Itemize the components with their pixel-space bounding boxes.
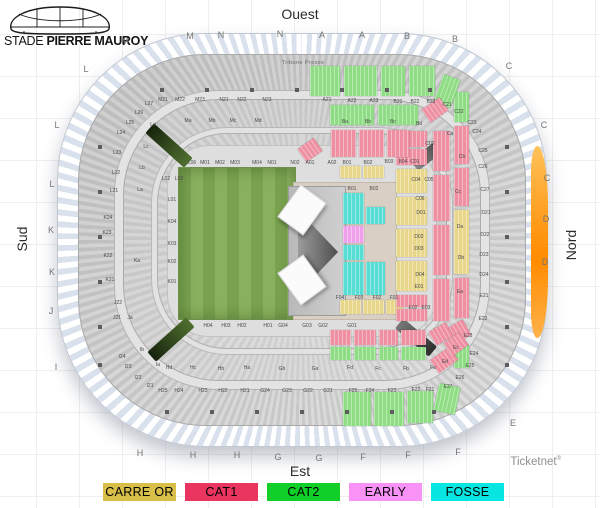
section-label: E21 — [480, 293, 489, 299]
section-label: H02 — [237, 323, 246, 329]
section-label: L06 — [188, 160, 196, 166]
section-label: C06 — [415, 196, 424, 202]
section-label: Ba — [342, 119, 348, 125]
section-label: F01 — [390, 295, 399, 301]
section-label: A23 — [370, 98, 379, 104]
ring-letter: B — [404, 31, 410, 41]
section-label: Fc — [375, 366, 381, 372]
vomitory-tick — [340, 88, 344, 92]
section-label: K03 — [168, 241, 177, 247]
vomitory-tick — [210, 410, 214, 414]
section-label: Cc — [455, 189, 461, 195]
section-label: G02 — [318, 323, 327, 329]
vomitory-tick — [428, 88, 432, 92]
section-label: K23 — [103, 230, 112, 236]
vomitory-tick — [390, 410, 394, 414]
section-label: D03 — [414, 246, 423, 252]
ring-letter: I — [55, 362, 58, 372]
section-label: Fb — [403, 366, 409, 372]
section-label: C01 — [410, 159, 419, 165]
ring-letter: K — [49, 267, 55, 277]
section-label: Hd — [166, 365, 172, 371]
section-label: C25 — [478, 148, 487, 154]
section-label: L01 — [168, 197, 176, 203]
section-label: H21 — [240, 388, 249, 394]
ring-letter: E — [510, 418, 516, 428]
legend-item-fosse: FOSSE — [431, 483, 504, 501]
vomitory-tick — [160, 88, 164, 92]
vomitory-tick — [250, 88, 254, 92]
section-label: G03 — [302, 323, 311, 329]
seat-block-cat1[interactable] — [359, 130, 384, 157]
vomitory-tick — [300, 410, 304, 414]
legend-item-cat2: CAT2 — [267, 483, 340, 501]
ring-letter: G — [274, 452, 281, 462]
section-label: F02 — [373, 295, 382, 301]
section-label: Cb — [459, 154, 465, 160]
section-label: D21 — [481, 210, 490, 216]
section-label: D22 — [480, 232, 489, 238]
vomitory-tick — [98, 325, 102, 329]
seat-block-cat1[interactable] — [454, 278, 469, 318]
ring-letter: H — [234, 450, 241, 460]
pitch — [178, 167, 296, 320]
ring-letter: A — [359, 30, 365, 40]
section-label: Ma — [185, 118, 192, 124]
vomitory-tick — [98, 235, 102, 239]
vomitory-tick — [205, 88, 209, 92]
seat-block-cat2[interactable] — [374, 392, 404, 426]
ring-letter: C — [544, 173, 551, 183]
section-label: E02 — [409, 305, 418, 311]
section-label: E25 — [466, 363, 475, 369]
section-label: D02 — [414, 234, 423, 240]
ticketnet-text: Ticketnet — [510, 456, 556, 468]
section-label: C26 — [478, 164, 487, 170]
seat-block-cat2[interactable] — [407, 391, 433, 423]
seat-block-cat1[interactable] — [354, 330, 376, 345]
seat-block-cat2[interactable] — [330, 347, 351, 360]
section-label: C22 — [454, 109, 463, 115]
section-label: Ga — [312, 366, 319, 372]
section-label: Hc — [190, 365, 196, 371]
vomitory-tick — [432, 410, 436, 414]
section-label: A02 — [328, 160, 337, 166]
ring-letter: J — [49, 306, 54, 316]
ring-letter: N — [218, 30, 225, 40]
section-label: F24 — [366, 388, 375, 394]
section-label: G04 — [278, 323, 287, 329]
section-label: I24 — [119, 354, 126, 360]
seat-block-fosse[interactable] — [343, 245, 364, 260]
section-label: C27 — [480, 187, 489, 193]
vomitory-tick — [505, 190, 509, 194]
ring-letter: L — [83, 64, 88, 74]
section-label: B02 — [364, 160, 373, 166]
section-label: B03 — [385, 159, 394, 165]
seat-block-cat1[interactable] — [433, 225, 450, 275]
section-label: E22 — [479, 316, 488, 322]
section-label: Bb — [365, 119, 371, 125]
section-label: H22 — [218, 388, 227, 394]
section-label: H25 — [158, 388, 167, 394]
section-label: B01 — [343, 160, 352, 166]
ring-letter: H — [190, 450, 197, 460]
section-label: G23 — [282, 388, 291, 394]
seat-block-or[interactable] — [363, 300, 384, 314]
section-label: N02 — [290, 160, 299, 166]
seat-block-cat1[interactable] — [331, 130, 356, 157]
section-label: J21 — [113, 315, 121, 321]
section-label: K04 — [168, 219, 177, 225]
seat-block-cat2[interactable] — [343, 392, 371, 426]
section-label: B02 — [370, 186, 379, 192]
seat-block-cat1[interactable] — [433, 279, 450, 321]
section-label: K01 — [168, 279, 177, 285]
vomitory-tick — [255, 410, 259, 414]
section-label: A22 — [348, 98, 357, 104]
seat-map-page: STADE PIERRE MAUROY Ouest Est Sud Nord T… — [0, 0, 600, 508]
section-label: L25 — [126, 120, 134, 126]
seat-block-cat1[interactable] — [387, 130, 409, 157]
section-label: F25 — [349, 388, 358, 394]
seat-block-cat2[interactable] — [401, 347, 426, 360]
seat-block-cat2[interactable] — [454, 92, 469, 122]
section-label: G01 — [347, 323, 356, 329]
seat-block-early[interactable] — [343, 226, 364, 243]
section-label: Fa — [430, 365, 436, 371]
section-label: M03 — [230, 160, 240, 166]
vomitory-tick — [98, 363, 102, 367]
section-label: M02 — [215, 160, 225, 166]
seat-block-cat2[interactable] — [379, 347, 398, 360]
section-label: G22 — [303, 388, 312, 394]
section-label: La — [137, 187, 143, 193]
seat-block-fosse[interactable] — [343, 193, 364, 224]
ring-letter: K — [48, 225, 54, 235]
seat-block-fosse[interactable] — [366, 207, 385, 224]
section-label: A01 — [306, 160, 315, 166]
section-label: N21 — [219, 97, 228, 103]
section-label: G24 — [260, 388, 269, 394]
seat-block-cat2[interactable] — [354, 347, 376, 360]
vomitory-tick — [505, 145, 509, 149]
ring-letter: F — [405, 450, 411, 460]
section-label: Ib — [140, 347, 144, 353]
section-label: K24 — [104, 215, 113, 221]
registered-mark: ® — [557, 456, 561, 462]
section-label: D24 — [479, 272, 488, 278]
section-label: I23 — [125, 364, 132, 370]
vomitory-tick — [98, 280, 102, 284]
section-label: B01 — [348, 186, 357, 192]
section-label: Ja — [127, 315, 132, 321]
ring-letter: L — [49, 179, 54, 189]
seat-block-or[interactable] — [340, 166, 361, 178]
section-label: H04 — [203, 323, 212, 329]
seat-block-or[interactable] — [363, 166, 384, 178]
section-label: D04 — [415, 272, 424, 278]
vomitory-tick — [98, 145, 102, 149]
section-label: Ca — [447, 131, 453, 137]
section-label: G21 — [323, 388, 332, 394]
section-label: L27 — [145, 101, 153, 107]
vomitory-tick — [505, 280, 509, 284]
category-legend: CARRE ORCAT1CAT2EARLYFOSSE — [103, 483, 505, 501]
section-label: N23 — [262, 97, 271, 103]
section-label: N22 — [237, 97, 246, 103]
section-label: C21 — [442, 102, 451, 108]
section-label: C24 — [472, 129, 481, 135]
vomitory-tick — [295, 88, 299, 92]
section-label: A21 — [323, 97, 332, 103]
section-label: C05 — [424, 177, 433, 183]
seat-block-cat2[interactable] — [378, 105, 418, 125]
ring-letter: M — [186, 31, 194, 41]
seat-block-cat1[interactable] — [433, 175, 450, 221]
section-label: Ka — [134, 258, 140, 264]
section-label: M23 — [195, 97, 205, 103]
ring-letter: L — [54, 120, 59, 130]
section-label: Db — [458, 255, 464, 261]
section-label: Fd — [347, 365, 353, 371]
section-label: F04 — [336, 295, 345, 301]
section-label: Ha — [244, 365, 250, 371]
ring-letter: F — [360, 452, 366, 462]
section-label: Mb — [209, 118, 216, 124]
section-label: F03 — [355, 295, 364, 301]
seat-block-cat1[interactable] — [401, 330, 426, 345]
vomitory-tick — [165, 410, 169, 414]
section-label: E24 — [470, 351, 479, 357]
section-label: D23 — [479, 252, 488, 258]
section-label: Gb — [279, 366, 286, 372]
vomitory-tick — [345, 410, 349, 414]
section-label: Mc — [230, 118, 237, 124]
legend-item-early: EARLY — [349, 483, 422, 501]
ring-letter: C — [541, 120, 548, 130]
section-label: M21 — [158, 97, 168, 103]
ring-letter: M — [121, 36, 129, 46]
vomitory-tick — [385, 88, 389, 92]
legend-item-carre-or: CARRE OR — [103, 483, 176, 501]
ring-letter: G — [315, 453, 322, 463]
seat-block-cat1[interactable] — [433, 131, 450, 171]
section-label: H23 — [198, 388, 207, 394]
ring-letter: D — [543, 214, 550, 224]
ring-letter: D — [542, 257, 549, 267]
section-label: Bc — [390, 119, 396, 125]
section-label: C04 — [411, 177, 420, 183]
section-label: H03 — [221, 323, 230, 329]
stadium-map: Tribune Presse M21M22M23N21N22N23A21A22A… — [0, 0, 600, 508]
section-label: J22 — [114, 300, 122, 306]
ring-letter: N — [277, 29, 284, 39]
section-label: M22 — [175, 97, 185, 103]
section-label: H24 — [174, 388, 183, 394]
section-label: F22 — [412, 387, 421, 393]
section-label: Ia — [156, 362, 160, 368]
section-label: K22 — [104, 253, 113, 259]
section-label: M04 — [252, 160, 262, 166]
seat-block-or[interactable] — [340, 300, 361, 314]
section-label: Hb — [218, 366, 224, 372]
ring-letter: F — [455, 447, 461, 457]
section-label: B21 — [394, 99, 403, 105]
vomitory-tick — [98, 190, 102, 194]
section-label: L26 — [135, 110, 143, 116]
section-label: Lb — [139, 165, 145, 171]
section-label: Bd — [416, 121, 422, 127]
vomitory-tick — [505, 235, 509, 239]
section-label: I22 — [135, 375, 142, 381]
section-label: K02 — [168, 259, 177, 265]
section-label: L22 — [112, 170, 120, 176]
section-label: L24 — [117, 130, 125, 136]
section-label: Da — [457, 224, 463, 230]
section-label: L02 — [162, 176, 170, 182]
ticketnet-logo: Ticketnet® — [477, 456, 561, 468]
section-label: K21 — [106, 277, 115, 283]
section-label: B22 — [411, 99, 420, 105]
section-label: M01 — [200, 160, 210, 166]
section-label: L21 — [110, 188, 118, 194]
section-label: E03 — [422, 305, 431, 311]
seat-block-cat2[interactable] — [310, 66, 340, 96]
seat-block-fosse[interactable] — [343, 262, 364, 295]
section-label: Ea — [457, 289, 463, 295]
seat-block-cat1[interactable] — [454, 168, 469, 206]
seat-block-fosse[interactable] — [366, 262, 385, 295]
section-label: H01 — [263, 323, 272, 329]
section-label: B04 — [399, 159, 408, 165]
section-label: E26 — [456, 375, 465, 381]
section-label: D01 — [416, 210, 425, 216]
section-label: L03 — [175, 176, 183, 182]
section-label: L23 — [113, 150, 121, 156]
section-label: N01 — [267, 160, 276, 166]
seat-block-or[interactable] — [454, 210, 469, 274]
section-label: C23 — [467, 120, 476, 126]
section-label: I21 — [147, 383, 154, 389]
section-label: C02 — [425, 141, 434, 147]
section-label: E27 — [444, 384, 453, 390]
vomitory-tick — [505, 363, 509, 367]
section-label: F23 — [388, 388, 397, 394]
seat-block-cat1[interactable] — [330, 330, 351, 345]
ring-letter: A — [319, 30, 325, 40]
section-label: E23 — [464, 333, 473, 339]
section-label: Ec — [453, 345, 459, 351]
ring-letter: H — [137, 448, 144, 458]
section-label: E01 — [415, 284, 424, 290]
vomitory-tick — [505, 325, 509, 329]
ring-letter: C — [506, 61, 513, 71]
ring-letter: B — [452, 34, 458, 44]
section-label: Ld — [150, 122, 156, 128]
seat-block-cat1[interactable] — [379, 330, 398, 345]
section-label: Lc — [143, 144, 148, 150]
seat-block-cat2[interactable] — [344, 66, 377, 96]
section-label: B23 — [427, 99, 436, 105]
section-label: F21 — [426, 387, 435, 393]
legend-item-cat1: CAT1 — [185, 483, 258, 501]
section-label: Ed — [442, 359, 448, 365]
section-label: Md — [255, 118, 262, 124]
